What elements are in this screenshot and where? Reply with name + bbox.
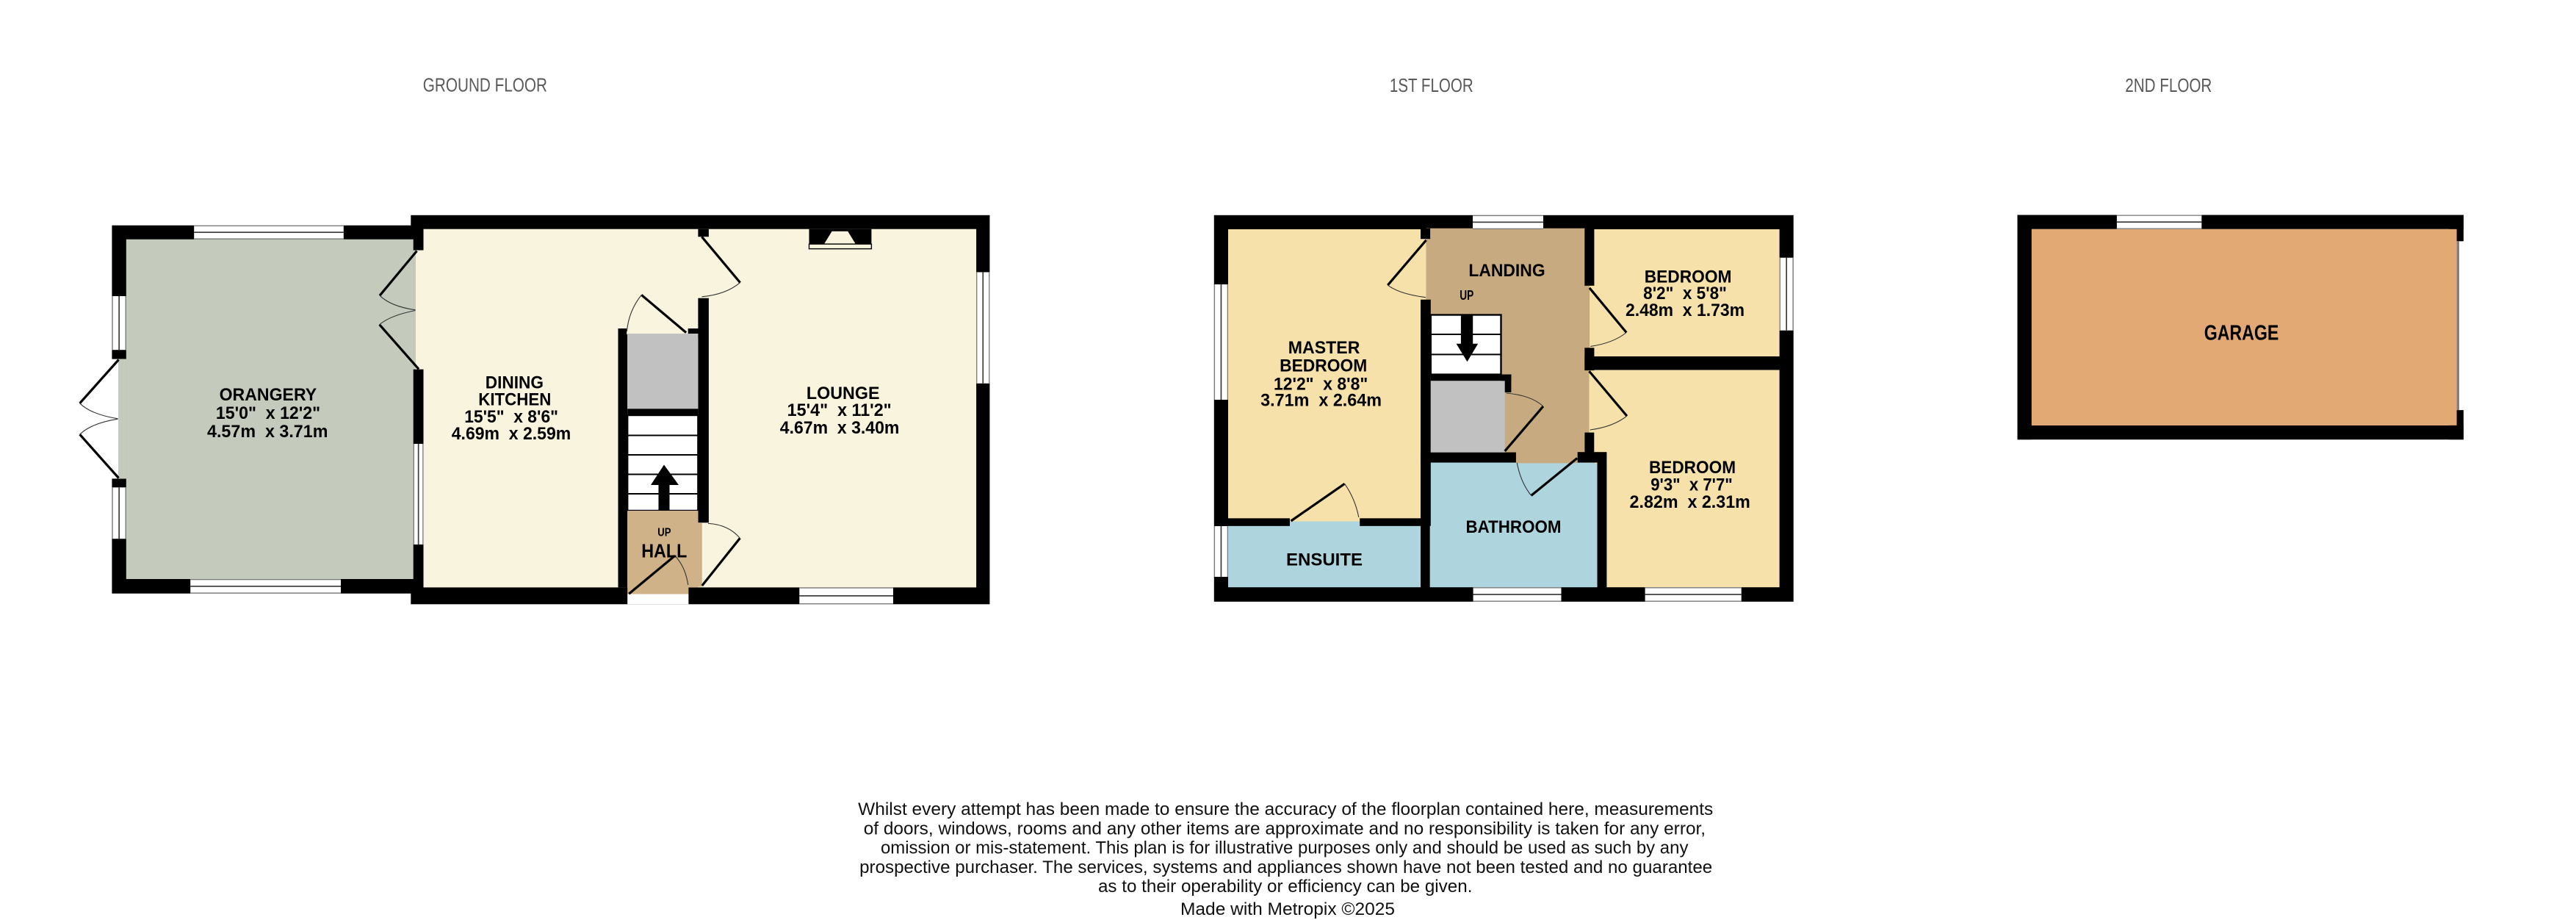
svg-text:3.71m x 2.64m: 3.71m x 2.64m — [1260, 391, 1382, 411]
svg-text:UP: UP — [657, 526, 671, 539]
svg-text:Made with Metropix ©2025: Made with Metropix ©2025 — [1180, 899, 1395, 919]
svg-text:HALL: HALL — [641, 541, 687, 561]
svg-text:GROUND FLOOR: GROUND FLOOR — [423, 76, 547, 96]
svg-text:GARAGE: GARAGE — [2204, 321, 2279, 345]
svg-text:BATHROOM: BATHROOM — [1466, 517, 1562, 537]
svg-text:4.67m x 3.40m: 4.67m x 3.40m — [780, 418, 900, 438]
svg-text:15'4" x 11'2": 15'4" x 11'2" — [787, 400, 892, 420]
svg-text:UP: UP — [1460, 288, 1473, 303]
svg-text:MASTER: MASTER — [1288, 338, 1360, 358]
svg-text:4.69m x 2.59m: 4.69m x 2.59m — [452, 424, 571, 444]
svg-text:2.82m x 2.31m: 2.82m x 2.31m — [1630, 492, 1750, 512]
svg-text:2.48m x 1.73m: 2.48m x 1.73m — [1626, 301, 1745, 320]
svg-text:prospective purchaser. The ser: prospective purchaser. The services, sys… — [859, 858, 1712, 877]
svg-text:15'0" x 12'2": 15'0" x 12'2" — [216, 403, 320, 423]
svg-text:LANDING: LANDING — [1468, 261, 1545, 281]
svg-text:1ST FLOOR: 1ST FLOOR — [1390, 76, 1473, 96]
svg-text:of doors, windows, rooms and a: of doors, windows, rooms and any other i… — [864, 819, 1706, 838]
svg-text:as to their operability or eff: as to their operability or efficiency ca… — [1098, 877, 1473, 896]
svg-text:omission or mis-statement. Thi: omission or mis-statement. This plan is … — [881, 838, 1689, 858]
svg-text:2ND FLOOR: 2ND FLOOR — [2125, 76, 2212, 96]
svg-text:BEDROOM: BEDROOM — [1280, 356, 1367, 376]
svg-text:Whilst every attempt has been: Whilst every attempt has been made to en… — [858, 799, 1713, 819]
svg-text:ORANGERY: ORANGERY — [220, 385, 317, 405]
svg-text:ENSUITE: ENSUITE — [1286, 550, 1363, 569]
svg-text:4.57m x 3.71m: 4.57m x 3.71m — [207, 422, 328, 442]
